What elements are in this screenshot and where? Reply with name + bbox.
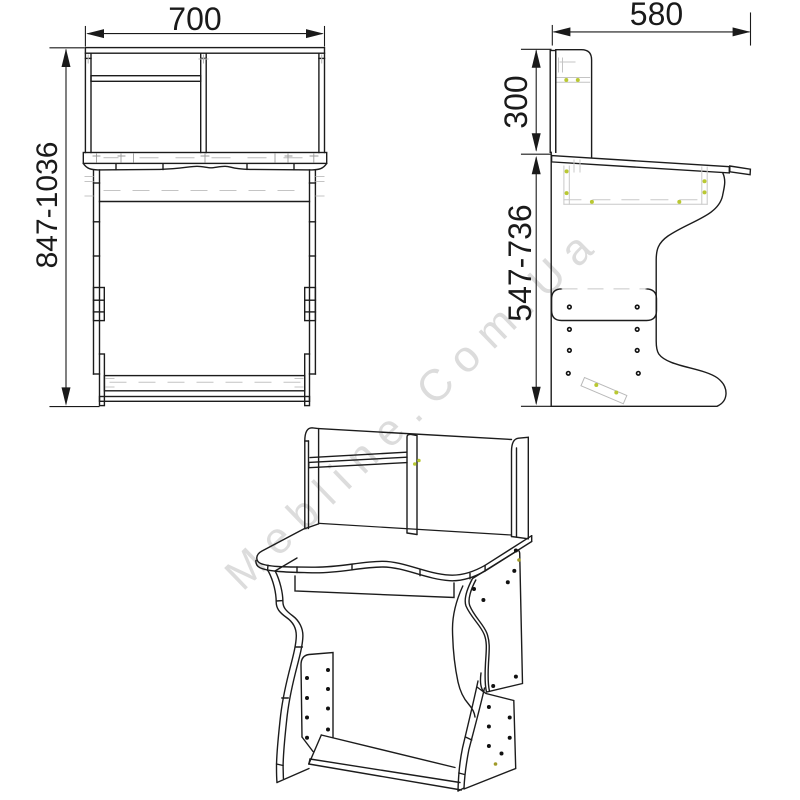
- svg-text:547-736: 547-736: [502, 204, 538, 321]
- svg-text:580: 580: [630, 0, 683, 32]
- svg-text:847-1036: 847-1036: [31, 142, 64, 269]
- svg-text:700: 700: [168, 1, 221, 37]
- svg-text:300: 300: [498, 75, 534, 128]
